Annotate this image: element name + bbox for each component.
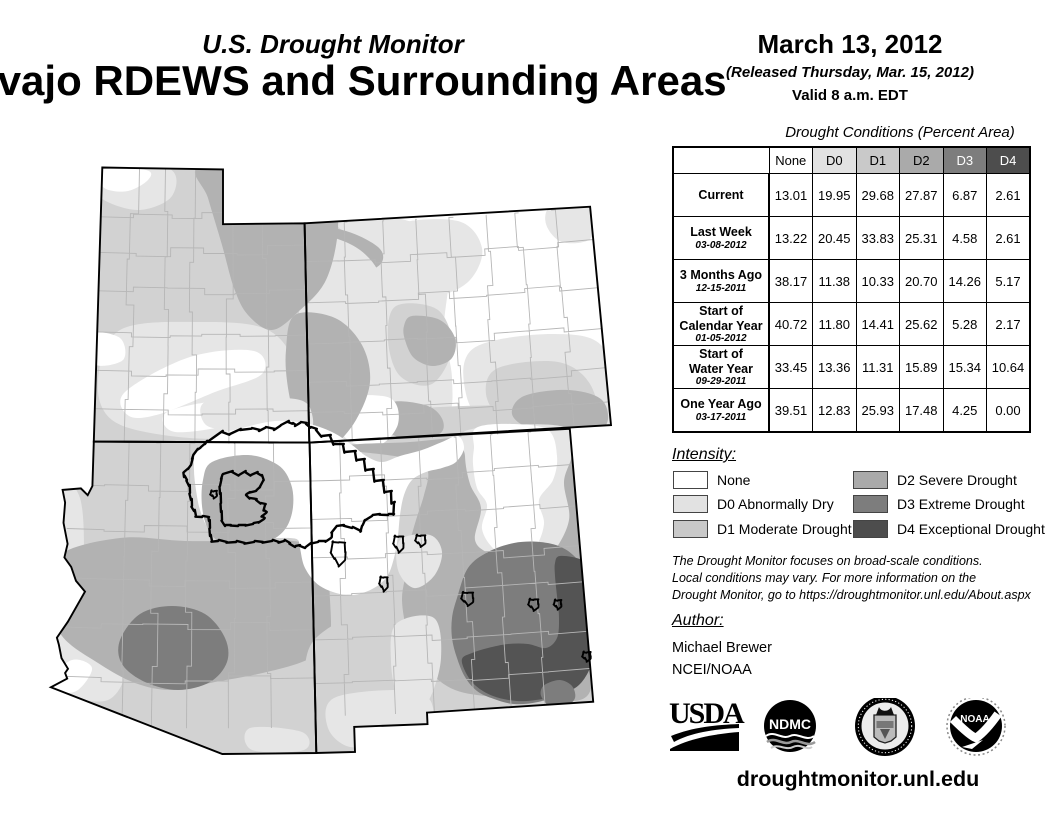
svg-text:NOAA: NOAA (960, 714, 989, 725)
svg-text:NDMC: NDMC (769, 716, 811, 732)
